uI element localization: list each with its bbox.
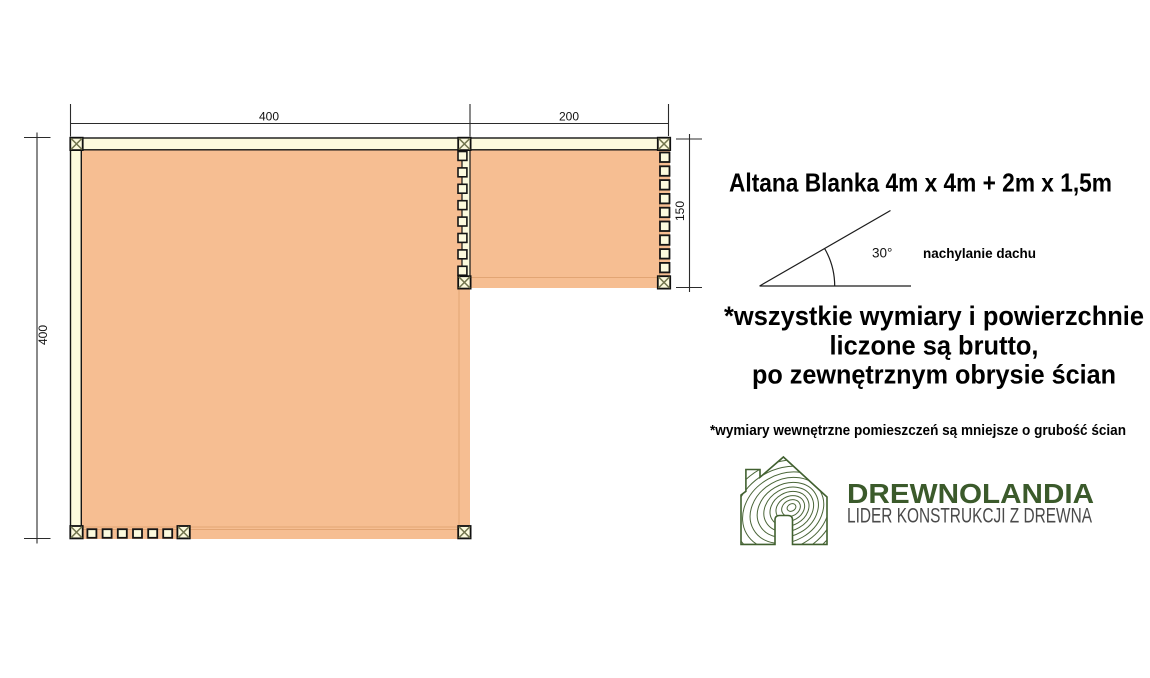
svg-text:*wymiary wewnętrzne pomieszcze: *wymiary wewnętrzne pomieszczeń są mniej… xyxy=(710,423,1126,439)
svg-text:LIDER KONSTRUKCJI Z DREWNA: LIDER KONSTRUKCJI Z DREWNA xyxy=(847,505,1092,528)
svg-text:*wszystkie wymiary i powierzch: *wszystkie wymiary i powierzchnie xyxy=(724,301,1144,331)
svg-text:30°: 30° xyxy=(872,246,892,261)
svg-text:400: 400 xyxy=(259,110,279,124)
svg-text:400: 400 xyxy=(36,325,50,345)
svg-text:200: 200 xyxy=(559,110,579,124)
svg-text:Altana Blanka 4m x 4m + 2m x 1: Altana Blanka 4m x 4m + 2m x 1,5m xyxy=(729,168,1112,198)
svg-text:150: 150 xyxy=(673,201,687,221)
svg-text:liczone są brutto,: liczone są brutto, xyxy=(830,330,1039,360)
svg-text:po zewnętrznym obrysie ścian: po zewnętrznym obrysie ścian xyxy=(752,360,1116,390)
svg-text:nachylanie dachu: nachylanie dachu xyxy=(923,245,1036,261)
